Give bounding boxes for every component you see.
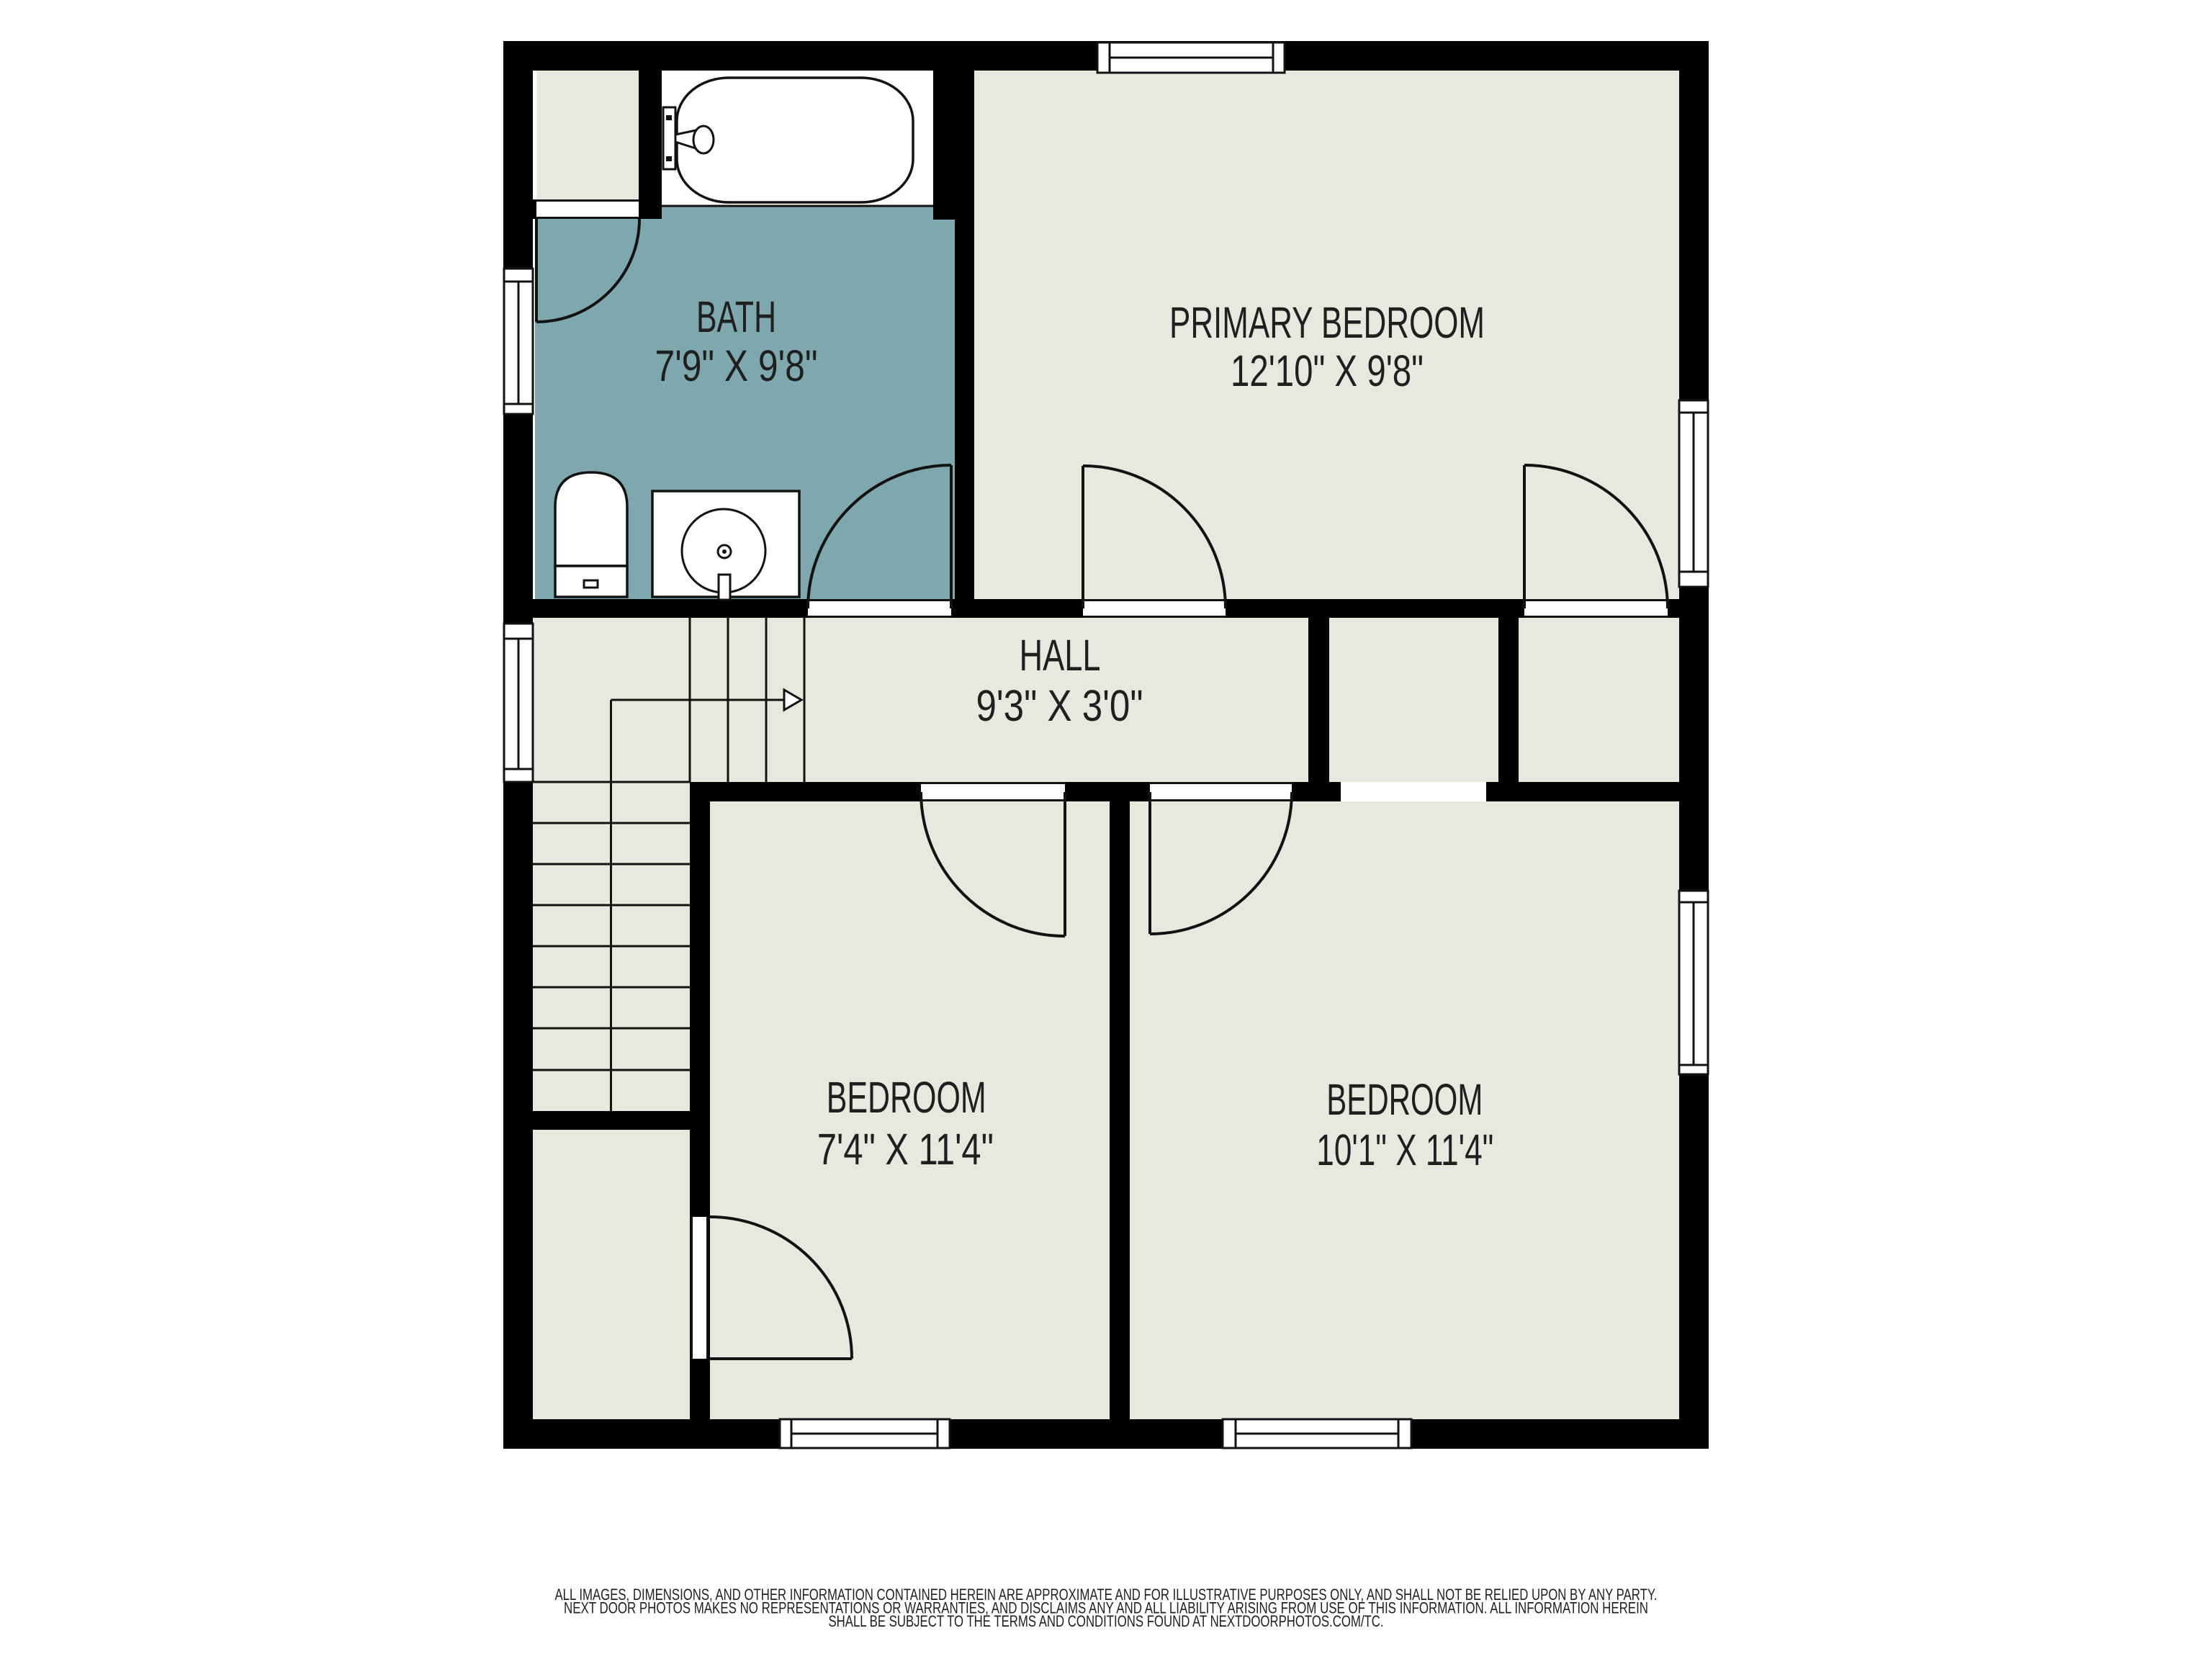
svg-text:12'10" X 9'8": 12'10" X 9'8" bbox=[1231, 346, 1424, 395]
svg-text:7'4" X 11'4": 7'4" X 11'4" bbox=[817, 1125, 994, 1174]
svg-text:BATH: BATH bbox=[696, 292, 776, 341]
svg-text:SHALL BE SUBJECT TO THE TERMS: SHALL BE SUBJECT TO THE TERMS AND CONDIT… bbox=[829, 1612, 1384, 1630]
svg-text:HALL: HALL bbox=[1020, 631, 1101, 680]
svg-text:9'3" X 3'0": 9'3" X 3'0" bbox=[976, 681, 1143, 730]
svg-text:7'9" X 9'8": 7'9" X 9'8" bbox=[655, 341, 818, 390]
svg-text:PRIMARY BEDROOM: PRIMARY BEDROOM bbox=[1169, 298, 1485, 347]
svg-text:BEDROOM: BEDROOM bbox=[827, 1073, 986, 1122]
svg-text:BEDROOM: BEDROOM bbox=[1326, 1075, 1483, 1124]
svg-text:10'1" X 11'4": 10'1" X 11'4" bbox=[1316, 1125, 1493, 1174]
